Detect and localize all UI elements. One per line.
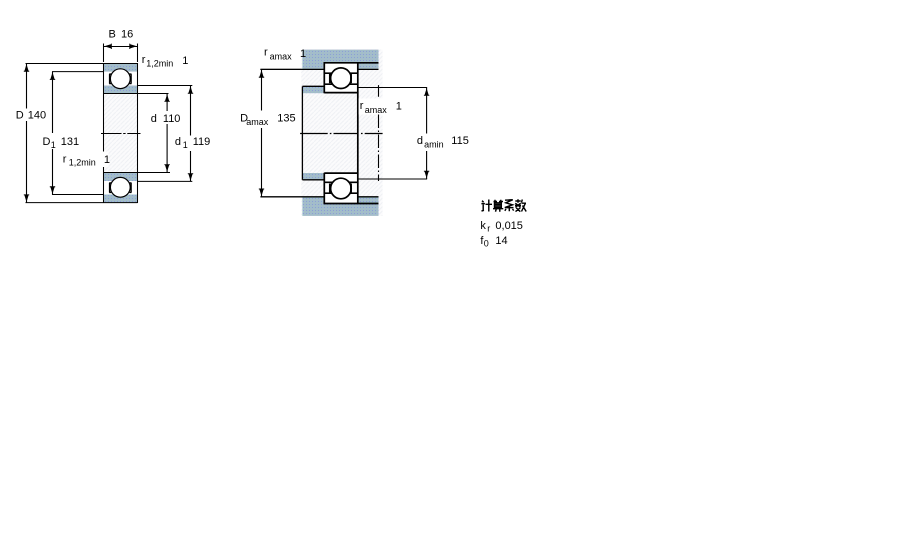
- svg-text:d: d: [151, 113, 157, 125]
- svg-text:1,2min: 1,2min: [69, 158, 96, 168]
- svg-text:115: 115: [451, 135, 469, 147]
- svg-text:1,2min: 1,2min: [146, 58, 173, 68]
- svg-text:D: D: [16, 110, 24, 122]
- svg-text:1: 1: [183, 140, 188, 150]
- svg-text:D: D: [43, 136, 51, 148]
- svg-text:1: 1: [51, 140, 56, 150]
- svg-text:119: 119: [193, 136, 211, 148]
- svg-text:r: r: [63, 153, 67, 165]
- svg-text:d: d: [175, 136, 181, 148]
- svg-text:1: 1: [300, 48, 306, 60]
- svg-text:amax: amax: [270, 52, 293, 62]
- svg-text:16: 16: [121, 29, 133, 41]
- svg-text:135: 135: [277, 113, 295, 125]
- svg-text:0: 0: [484, 238, 489, 248]
- svg-text:1: 1: [396, 101, 402, 113]
- svg-text:r: r: [360, 100, 364, 112]
- svg-text:131: 131: [61, 136, 79, 148]
- svg-text:140: 140: [28, 110, 46, 122]
- svg-text:1: 1: [104, 154, 110, 166]
- svg-text:110: 110: [163, 113, 181, 125]
- svg-text:k: k: [480, 220, 486, 232]
- svg-text:0,015: 0,015: [495, 220, 523, 232]
- svg-text:amax: amax: [365, 105, 388, 115]
- svg-text:1: 1: [182, 55, 188, 67]
- svg-text:14: 14: [495, 235, 507, 247]
- svg-text:amin: amin: [424, 140, 444, 150]
- svg-text:r: r: [487, 223, 490, 233]
- svg-text:d: d: [417, 135, 423, 147]
- svg-text:r: r: [142, 54, 146, 66]
- svg-text:amax: amax: [246, 117, 269, 127]
- svg-text:r: r: [264, 46, 268, 58]
- svg-text:B: B: [109, 29, 116, 41]
